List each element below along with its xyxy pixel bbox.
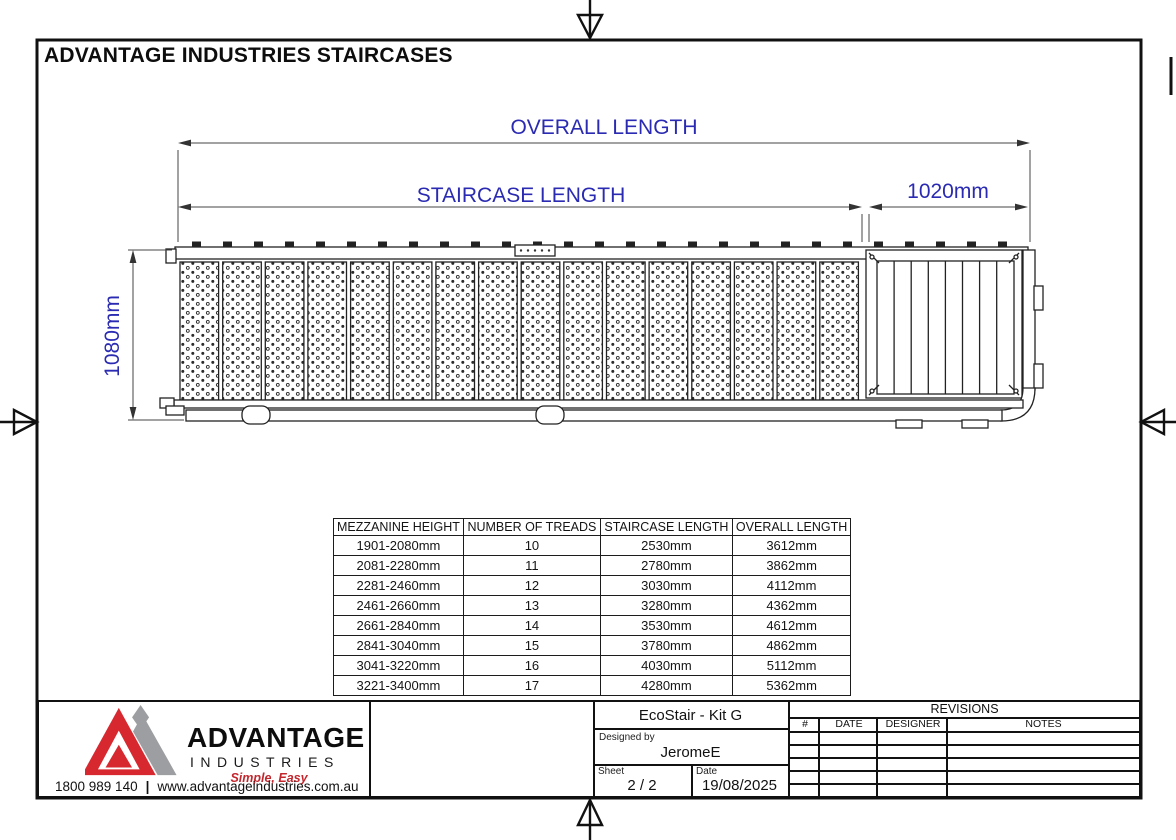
spec-table-body: 1901-2080mm102530mm3612mm2081-2280mm1127… [334, 536, 851, 696]
tread [223, 262, 262, 400]
divider [790, 783, 1139, 785]
brand-division: INDUSTRIES [190, 754, 340, 770]
spec-table-row: 2281-2460mm123030mm4112mm [334, 576, 851, 596]
tread [564, 262, 603, 400]
spec-cell: 2461-2660mm [334, 596, 464, 616]
date-label: Date [696, 766, 717, 777]
rev-col-date: DATE [820, 718, 878, 730]
spec-cell: 4030mm [600, 656, 732, 676]
bottom-bar [186, 410, 1002, 421]
sheet-label: Sheet [598, 766, 624, 777]
landing-length-value: 1020mm [907, 180, 989, 203]
spec-cell: 3780mm [600, 636, 732, 656]
brand-contact: 1800 989 140|www.advantageindustries.com… [55, 779, 358, 794]
tread [265, 262, 304, 400]
staircase-length-label: STAIRCASE LENGTH [417, 184, 625, 207]
spec-cell: 16 [463, 656, 600, 676]
logo-cell: ADVANTAGE INDUSTRIES Simple, Easy 1800 9… [39, 702, 369, 796]
spec-table: MEZZANINE HEIGHT NUMBER OF TREADS STAIRC… [333, 518, 851, 696]
tread [436, 262, 475, 400]
overall-length-label: OVERALL LENGTH [510, 116, 697, 139]
rail-tab-bottom [1034, 364, 1043, 388]
tread [479, 262, 518, 400]
rev-col-notes: NOTES [948, 718, 1139, 730]
spec-cell: 15 [463, 636, 600, 656]
spec-cell: 4612mm [732, 616, 850, 636]
tread [777, 262, 816, 400]
brand-name: ADVANTAGE [187, 722, 365, 754]
divider [790, 731, 1139, 733]
divider [369, 702, 371, 796]
spec-cell: 2661-2840mm [334, 616, 464, 636]
bar-lug-2 [536, 406, 564, 424]
rev-col-number: # [790, 718, 820, 730]
spec-cell: 5112mm [732, 656, 850, 676]
spec-cell: 4112mm [732, 576, 850, 596]
tread [521, 262, 560, 400]
tread [607, 262, 646, 400]
left-hook-lower [166, 406, 184, 415]
divider [790, 770, 1139, 772]
spec-cell: 12 [463, 576, 600, 596]
spec-cell: 2081-2280mm [334, 556, 464, 576]
treads [180, 262, 858, 400]
revisions-title: REVISIONS [790, 702, 1139, 716]
divider [790, 744, 1139, 746]
divider [790, 757, 1139, 759]
spec-cell: 13 [463, 596, 600, 616]
designed-by-value: JeromeE [593, 744, 788, 761]
bar-clip-2 [962, 420, 988, 428]
spec-cell: 3041-3220mm [334, 656, 464, 676]
spec-cell: 10 [463, 536, 600, 556]
spec-cell: 3030mm [600, 576, 732, 596]
sheet-value: 2 / 2 [593, 777, 691, 794]
spec-table-row: 3221-3400mm174280mm5362mm [334, 676, 851, 696]
spec-table-row: 1901-2080mm102530mm3612mm [334, 536, 851, 556]
product-name: EcoStair - Kit G [593, 707, 788, 724]
tread [649, 262, 688, 400]
bottom-stringer [174, 400, 1023, 408]
advantage-logo-icon [85, 705, 181, 777]
spec-cell: 14 [463, 616, 600, 636]
spec-cell: 4862mm [732, 636, 850, 656]
tread [692, 262, 731, 400]
rail-tab-top [1034, 286, 1043, 310]
spec-cell: 3530mm [600, 616, 732, 636]
brand-website: www.advantageindustries.com.au [157, 779, 358, 794]
tread [734, 262, 773, 400]
spec-cell: 3862mm [732, 556, 850, 576]
tread [351, 262, 390, 400]
col-header-overall-length: OVERALL LENGTH [732, 519, 850, 536]
col-header-staircase-length: STAIRCASE LENGTH [600, 519, 732, 536]
spec-cell: 3612mm [732, 536, 850, 556]
bar-clip-1 [896, 420, 922, 428]
spec-table-row: 3041-3220mm164030mm5112mm [334, 656, 851, 676]
spec-cell: 3221-3400mm [334, 676, 464, 696]
brand-phone: 1800 989 140 [55, 779, 138, 794]
spec-cell: 2281-2460mm [334, 576, 464, 596]
staircase-width-value: 1080mm [101, 295, 124, 377]
spec-cell: 1901-2080mm [334, 536, 464, 556]
spec-table-row: 2841-3040mm153780mm4862mm [334, 636, 851, 656]
spec-table-row: 2081-2280mm112780mm3862mm [334, 556, 851, 576]
spec-header-row: MEZZANINE HEIGHT NUMBER OF TREADS STAIRC… [334, 519, 851, 536]
spec-cell: 2780mm [600, 556, 732, 576]
tread [820, 262, 859, 400]
right-rail [1023, 250, 1035, 390]
spec-cell: 11 [463, 556, 600, 576]
col-header-number-of-treads: NUMBER OF TREADS [463, 519, 600, 536]
tread [393, 262, 432, 400]
staircase-drawing [160, 244, 1043, 428]
spec-cell: 17 [463, 676, 600, 696]
landing-platform [866, 250, 1022, 398]
title-block: ADVANTAGE INDUSTRIES Simple, Easy 1800 9… [37, 700, 1141, 798]
spec-table-row: 2661-2840mm143530mm4612mm [334, 616, 851, 636]
spec-cell: 4280mm [600, 676, 732, 696]
sheet-title: ADVANTAGE INDUSTRIES STAIRCASES [44, 44, 453, 68]
spec-cell: 4362mm [732, 596, 850, 616]
spec-cell: 3280mm [600, 596, 732, 616]
designed-by-label: Designed by [599, 732, 655, 743]
bar-lug-1 [242, 406, 270, 424]
spec-cell: 2530mm [600, 536, 732, 556]
col-header-mezzanine-height: MEZZANINE HEIGHT [334, 519, 464, 536]
spec-table-row: 2461-2660mm133280mm4362mm [334, 596, 851, 616]
tread [180, 262, 219, 400]
page: { "sheet": { "title": "ADVANTAGE INDUSTR… [0, 0, 1176, 840]
spec-cell: 5362mm [732, 676, 850, 696]
divider [593, 728, 790, 730]
tread [308, 262, 347, 400]
spec-cell: 2841-3040mm [334, 636, 464, 656]
rev-col-designer: DESIGNER [878, 718, 948, 730]
left-end-cap [166, 249, 176, 263]
contact-separator: | [146, 779, 150, 794]
date-value: 19/08/2025 [691, 777, 788, 794]
